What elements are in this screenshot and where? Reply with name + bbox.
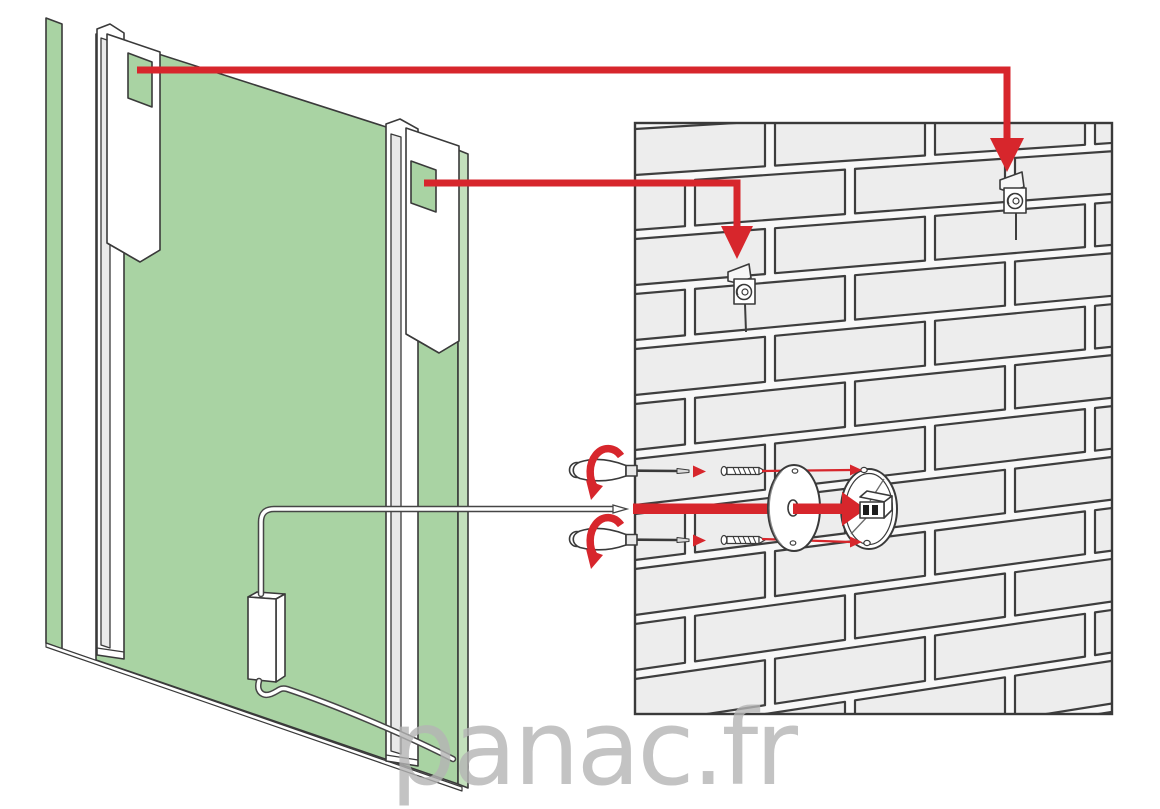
diagram-canvas: panac.fr	[0, 0, 1160, 809]
wall-screw-top	[721, 467, 765, 476]
brick	[775, 742, 925, 809]
brick	[1015, 148, 1160, 202]
brick	[1095, 92, 1160, 144]
driver-box	[248, 592, 285, 682]
mirror-assembly	[46, 18, 627, 791]
brick	[935, 716, 1085, 784]
installation-diagram: panac.fr	[0, 0, 1160, 809]
brick	[775, 112, 925, 166]
junction-box-connector	[860, 491, 892, 518]
brick	[615, 121, 765, 176]
watermark: panac.fr	[390, 687, 798, 809]
rail-bracket-cutout-left	[128, 53, 152, 107]
wall-screw-bottom	[721, 536, 765, 545]
mirror-front-edge	[46, 18, 62, 649]
